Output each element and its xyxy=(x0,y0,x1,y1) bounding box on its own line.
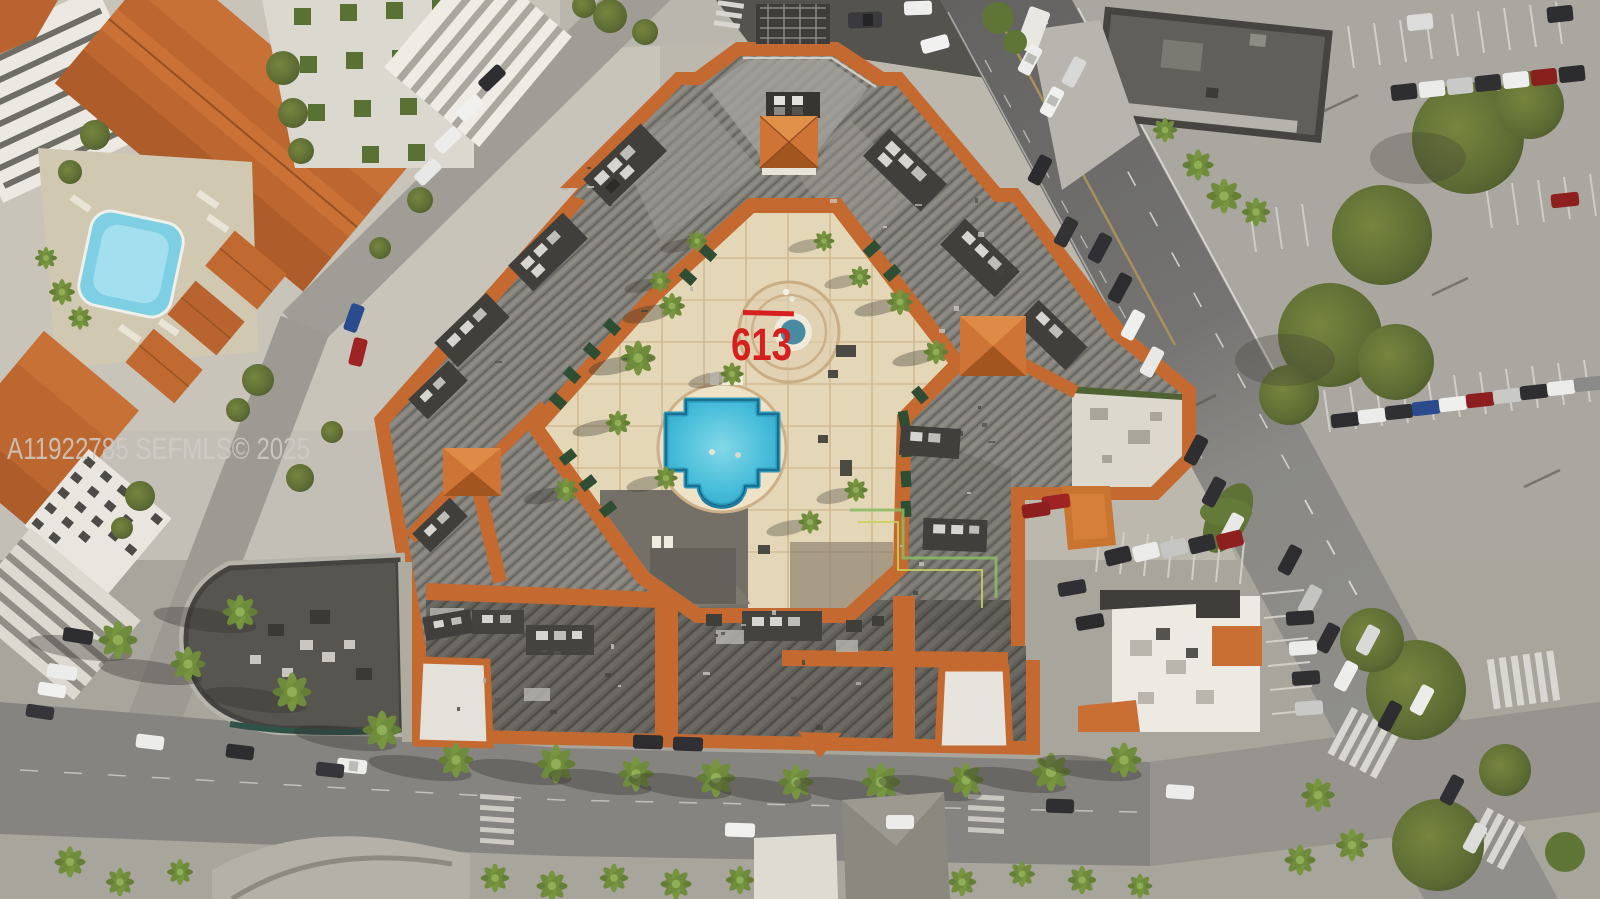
svg-text:613: 613 xyxy=(731,319,792,370)
svg-text:A11922785 SEFMLS© 2025: A11922785 SEFMLS© 2025 xyxy=(7,431,310,466)
